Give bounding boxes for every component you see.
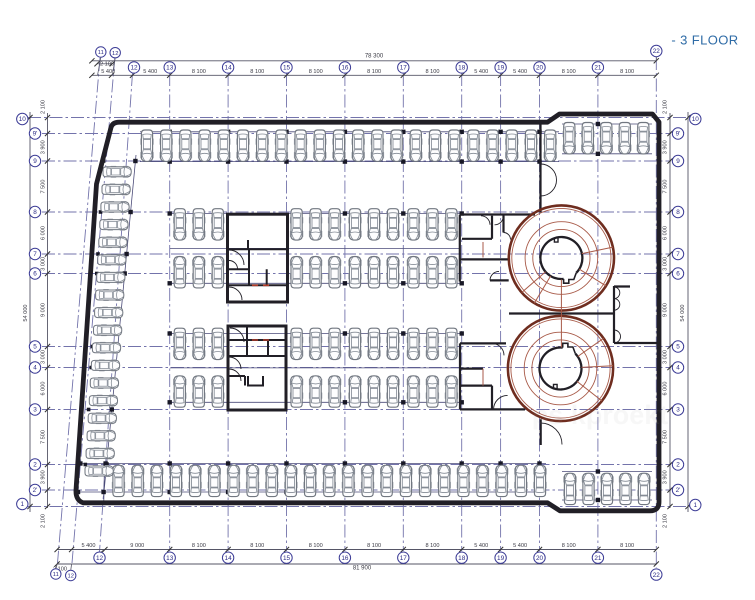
- svg-text:21: 21: [594, 65, 602, 72]
- svg-text:7: 7: [676, 251, 680, 258]
- svg-text:2: 2: [33, 462, 37, 469]
- svg-text:1: 1: [694, 502, 698, 509]
- svg-text:15: 15: [283, 555, 291, 562]
- svg-text:21: 21: [594, 555, 602, 562]
- svg-text:2': 2': [676, 487, 681, 494]
- svg-text:5: 5: [33, 344, 37, 351]
- svg-text:3 000: 3 000: [41, 257, 47, 271]
- svg-text:16: 16: [341, 555, 349, 562]
- svg-text:22: 22: [653, 48, 661, 55]
- svg-text:7 500: 7 500: [663, 430, 669, 444]
- svg-text:6 000: 6 000: [663, 226, 669, 240]
- svg-text:6 000: 6 000: [41, 226, 47, 240]
- svg-text:14: 14: [225, 65, 233, 72]
- svg-text:8 100: 8 100: [192, 69, 206, 75]
- svg-text:8 100: 8 100: [562, 69, 576, 75]
- svg-text:5 400: 5 400: [82, 543, 96, 549]
- svg-text:7 500: 7 500: [41, 430, 47, 444]
- svg-text:2: 2: [676, 462, 680, 469]
- svg-text:5 400: 5 400: [513, 69, 527, 75]
- svg-text:3 000: 3 000: [663, 350, 669, 364]
- svg-text:8 100: 8 100: [192, 543, 206, 549]
- svg-text:3 000: 3 000: [41, 350, 47, 364]
- svg-text:78 300: 78 300: [365, 54, 384, 60]
- svg-text:5 400: 5 400: [143, 69, 157, 75]
- svg-text:10: 10: [19, 116, 27, 123]
- svg-text:10: 10: [692, 116, 700, 123]
- svg-text:5 400: 5 400: [513, 543, 527, 549]
- svg-text:16: 16: [341, 65, 349, 72]
- svg-text:19: 19: [497, 555, 505, 562]
- svg-text:13: 13: [166, 555, 174, 562]
- svg-text:5 400: 5 400: [474, 69, 488, 75]
- svg-text:7 500: 7 500: [41, 180, 47, 194]
- svg-text:3: 3: [33, 407, 37, 414]
- svg-text:3: 3: [676, 407, 680, 414]
- svg-text:9': 9': [33, 131, 38, 138]
- svg-text:7: 7: [33, 251, 37, 258]
- svg-text:2 100: 2 100: [100, 62, 114, 68]
- svg-text:8 100: 8 100: [620, 543, 634, 549]
- svg-text:9 000: 9 000: [41, 303, 47, 317]
- svg-text:3 900: 3 900: [41, 140, 47, 154]
- svg-text:2 100: 2 100: [663, 100, 669, 114]
- svg-text:6: 6: [676, 271, 680, 278]
- svg-text:18: 18: [458, 65, 466, 72]
- svg-text:22: 22: [653, 572, 661, 579]
- svg-text:8 100: 8 100: [620, 69, 634, 75]
- svg-text:7 500: 7 500: [663, 180, 669, 194]
- svg-text:4: 4: [33, 365, 37, 372]
- svg-text:3 900: 3 900: [663, 470, 669, 484]
- svg-text:2 100: 2 100: [41, 100, 47, 114]
- svg-text:20: 20: [536, 555, 544, 562]
- svg-text:12: 12: [96, 555, 104, 562]
- svg-text:8: 8: [33, 209, 37, 216]
- svg-text:6: 6: [33, 271, 37, 278]
- svg-text:8 100: 8 100: [250, 69, 264, 75]
- svg-text:54 000: 54 000: [680, 304, 686, 321]
- svg-text:ps kproekt: ps kproekt: [532, 400, 669, 430]
- svg-text:8 100: 8 100: [309, 543, 323, 549]
- svg-text:11: 11: [53, 572, 59, 578]
- svg-text:8 100: 8 100: [562, 543, 576, 549]
- svg-text:14: 14: [225, 555, 233, 562]
- svg-text:20: 20: [536, 65, 544, 72]
- svg-text:- 3 FLOOR: - 3 FLOOR: [671, 33, 738, 48]
- svg-text:6 000: 6 000: [41, 382, 47, 396]
- svg-text:8 100: 8 100: [426, 543, 440, 549]
- svg-text:54 000: 54 000: [23, 304, 29, 321]
- svg-text:8 100: 8 100: [367, 69, 381, 75]
- svg-text:2': 2': [33, 487, 38, 494]
- svg-text:17: 17: [400, 65, 408, 72]
- svg-text:19: 19: [497, 65, 505, 72]
- svg-text:9': 9': [676, 131, 681, 138]
- svg-text:8: 8: [676, 209, 680, 216]
- svg-text:3 000: 3 000: [663, 257, 669, 271]
- svg-text:8 100: 8 100: [367, 543, 381, 549]
- svg-text:15: 15: [283, 65, 291, 72]
- svg-text:9 000: 9 000: [663, 303, 669, 317]
- svg-text:9 000: 9 000: [130, 543, 144, 549]
- svg-text:18: 18: [458, 555, 466, 562]
- svg-text:2 100: 2 100: [41, 514, 47, 528]
- svg-text:13: 13: [166, 65, 174, 72]
- svg-text:12: 12: [130, 65, 138, 72]
- svg-text:5: 5: [676, 344, 680, 351]
- svg-text:9: 9: [676, 158, 680, 165]
- svg-text:8 100: 8 100: [426, 69, 440, 75]
- svg-text:2 100: 2 100: [663, 514, 669, 528]
- svg-text:3 900: 3 900: [41, 470, 47, 484]
- svg-text:11: 11: [98, 50, 104, 56]
- svg-text:6 000: 6 000: [663, 382, 669, 396]
- svg-text:81 900: 81 900: [353, 566, 372, 572]
- svg-text:12: 12: [67, 574, 73, 580]
- svg-text:12: 12: [112, 51, 118, 57]
- svg-text:9: 9: [33, 158, 37, 165]
- svg-text:1: 1: [21, 501, 25, 508]
- svg-text:8 100: 8 100: [309, 69, 323, 75]
- svg-text:8 100: 8 100: [250, 543, 264, 549]
- svg-text:4: 4: [676, 365, 680, 372]
- svg-text:3 900: 3 900: [663, 140, 669, 154]
- svg-text:17: 17: [400, 555, 408, 562]
- svg-text:5 400: 5 400: [474, 543, 488, 549]
